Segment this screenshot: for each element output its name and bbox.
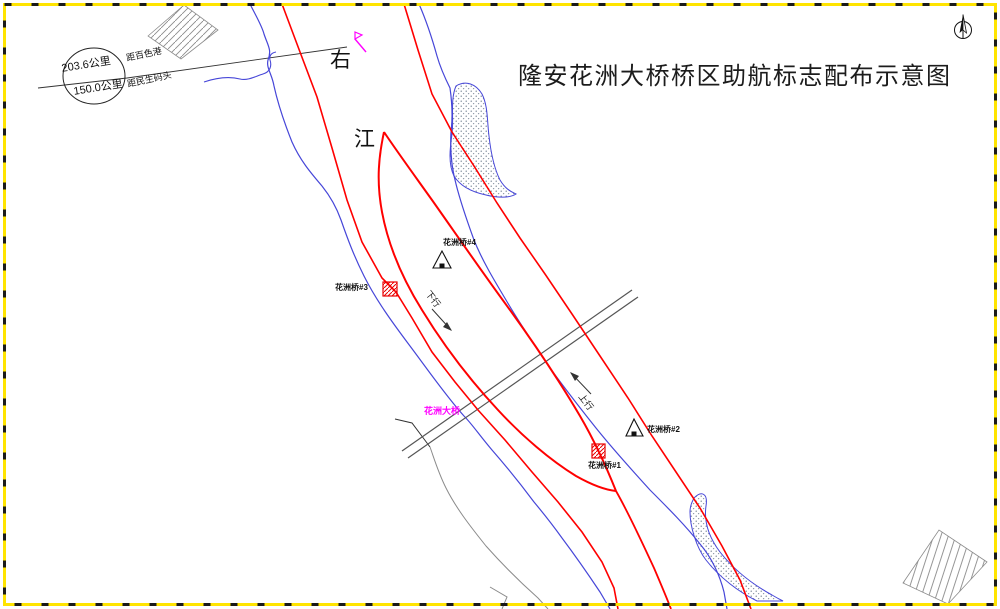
upstream-label: 上行 <box>577 391 597 412</box>
kilometre-post-circle <box>63 48 125 104</box>
beacon-b3: 花洲桥#3 <box>335 282 397 296</box>
distance-lower-label: 距民生码头 <box>126 69 172 89</box>
border-black-dashes <box>5 5 996 605</box>
beacon-b1: 花洲桥#1 <box>588 444 621 470</box>
shoal-island-lower <box>690 494 783 601</box>
chart-drawing: 203.6公里 150.0公里 距百色港 距民生码头 花洲桥#4 花洲桥#3 花… <box>0 0 1000 609</box>
north-arrow-icon <box>955 15 972 40</box>
beacon-b4-label: 花洲桥#4 <box>443 237 476 247</box>
beacon-b1-label: 花洲桥#1 <box>588 460 621 470</box>
bridge-name-label: 花洲大桥 <box>424 405 461 416</box>
beacon-b2-label: 花洲桥#2 <box>647 424 680 434</box>
drawing-title: 隆安花洲大桥桥区助航标志配布示意图 <box>518 63 952 90</box>
river-name-lower: 江 <box>354 128 375 151</box>
hatched-land-parcel-bottomright <box>903 530 987 604</box>
border-yellow <box>5 5 996 605</box>
drawing-canvas: 203.6公里 150.0公里 距百色港 距民生码头 花洲桥#4 花洲桥#3 花… <box>0 0 1000 609</box>
beacon-b3-label: 花洲桥#3 <box>335 282 368 292</box>
distance-upper-value: 203.6公里 <box>61 54 112 75</box>
river-name-upper: 右 <box>330 49 351 72</box>
distance-lower-value: 150.0公里 <box>73 77 124 98</box>
tributary-stream <box>204 52 276 82</box>
downstream-indicator: 下行 <box>424 288 452 331</box>
river-bank-left <box>250 4 610 609</box>
channel-line-tail <box>616 491 671 609</box>
embankment-line <box>430 447 548 609</box>
light-beacon-icon <box>355 32 366 52</box>
beacon-b2: 花洲桥#2 <box>626 419 680 436</box>
downstream-label: 下行 <box>424 288 444 309</box>
distance-upper-label: 距百色港 <box>125 45 163 63</box>
road-approach-line <box>395 419 430 447</box>
